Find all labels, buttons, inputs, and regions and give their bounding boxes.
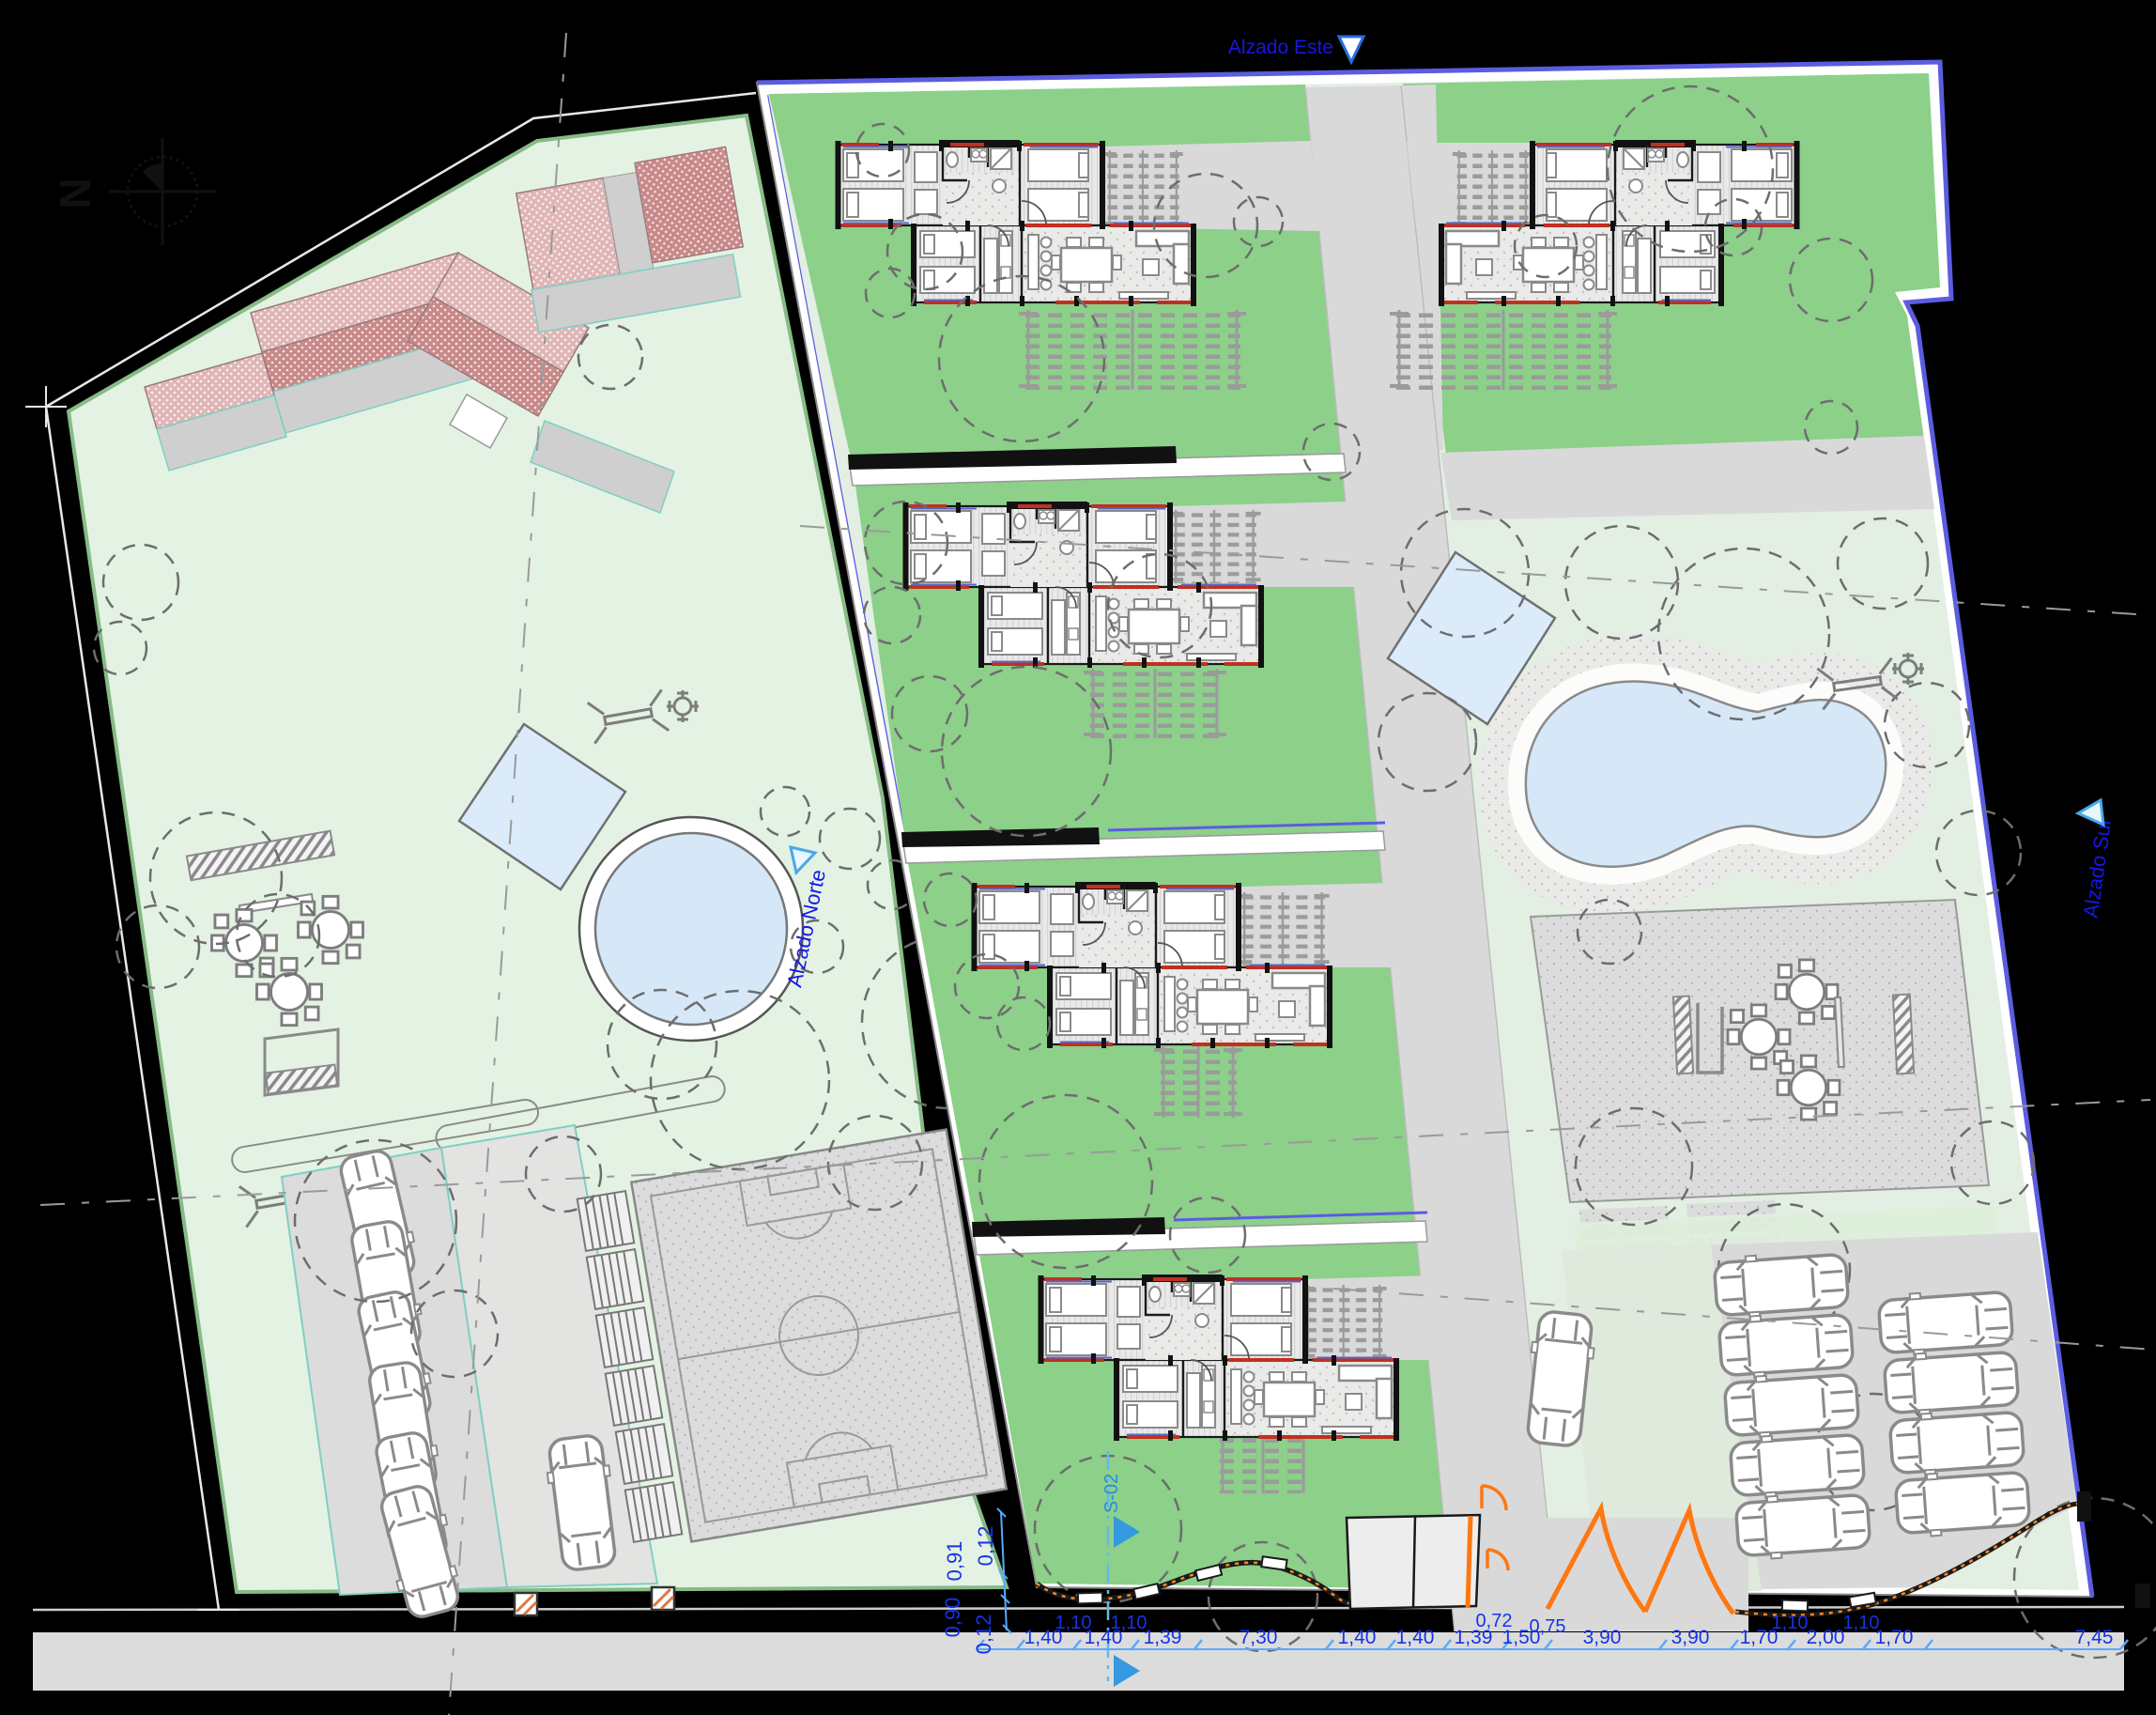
- svg-text:0,12: 0,12: [974, 1526, 997, 1567]
- svg-text:2,00: 2,00: [1807, 1627, 1845, 1648]
- svg-text:N: N: [51, 178, 100, 209]
- svg-text:7,30: 7,30: [1240, 1627, 1278, 1648]
- svg-text:0,90: 0,90: [941, 1598, 964, 1638]
- svg-text:1,39: 1,39: [1144, 1627, 1182, 1648]
- svg-text:0,12: 0,12: [972, 1615, 995, 1655]
- svg-text:0,75: 0,75: [1530, 1616, 1566, 1637]
- svg-text:1,70: 1,70: [1875, 1627, 1914, 1648]
- svg-text:0,72: 0,72: [1476, 1611, 1513, 1631]
- svg-text:1,40: 1,40: [1338, 1627, 1377, 1648]
- svg-text:1,40: 1,40: [1396, 1627, 1435, 1648]
- svg-text:3,90: 3,90: [1671, 1627, 1710, 1648]
- svg-text:0,91: 0,91: [943, 1541, 966, 1582]
- svg-text:1,10: 1,10: [1055, 1613, 1092, 1633]
- svg-text:Alzado Este: Alzado Este: [1228, 37, 1333, 58]
- svg-text:1,10: 1,10: [1772, 1613, 1809, 1633]
- svg-text:7,45: 7,45: [2075, 1627, 2114, 1648]
- svg-text:1,10: 1,10: [1843, 1613, 1880, 1633]
- svg-text:S-02: S-02: [1101, 1474, 1122, 1513]
- svg-text:1,10: 1,10: [1111, 1613, 1147, 1633]
- svg-text:3,90: 3,90: [1583, 1627, 1622, 1648]
